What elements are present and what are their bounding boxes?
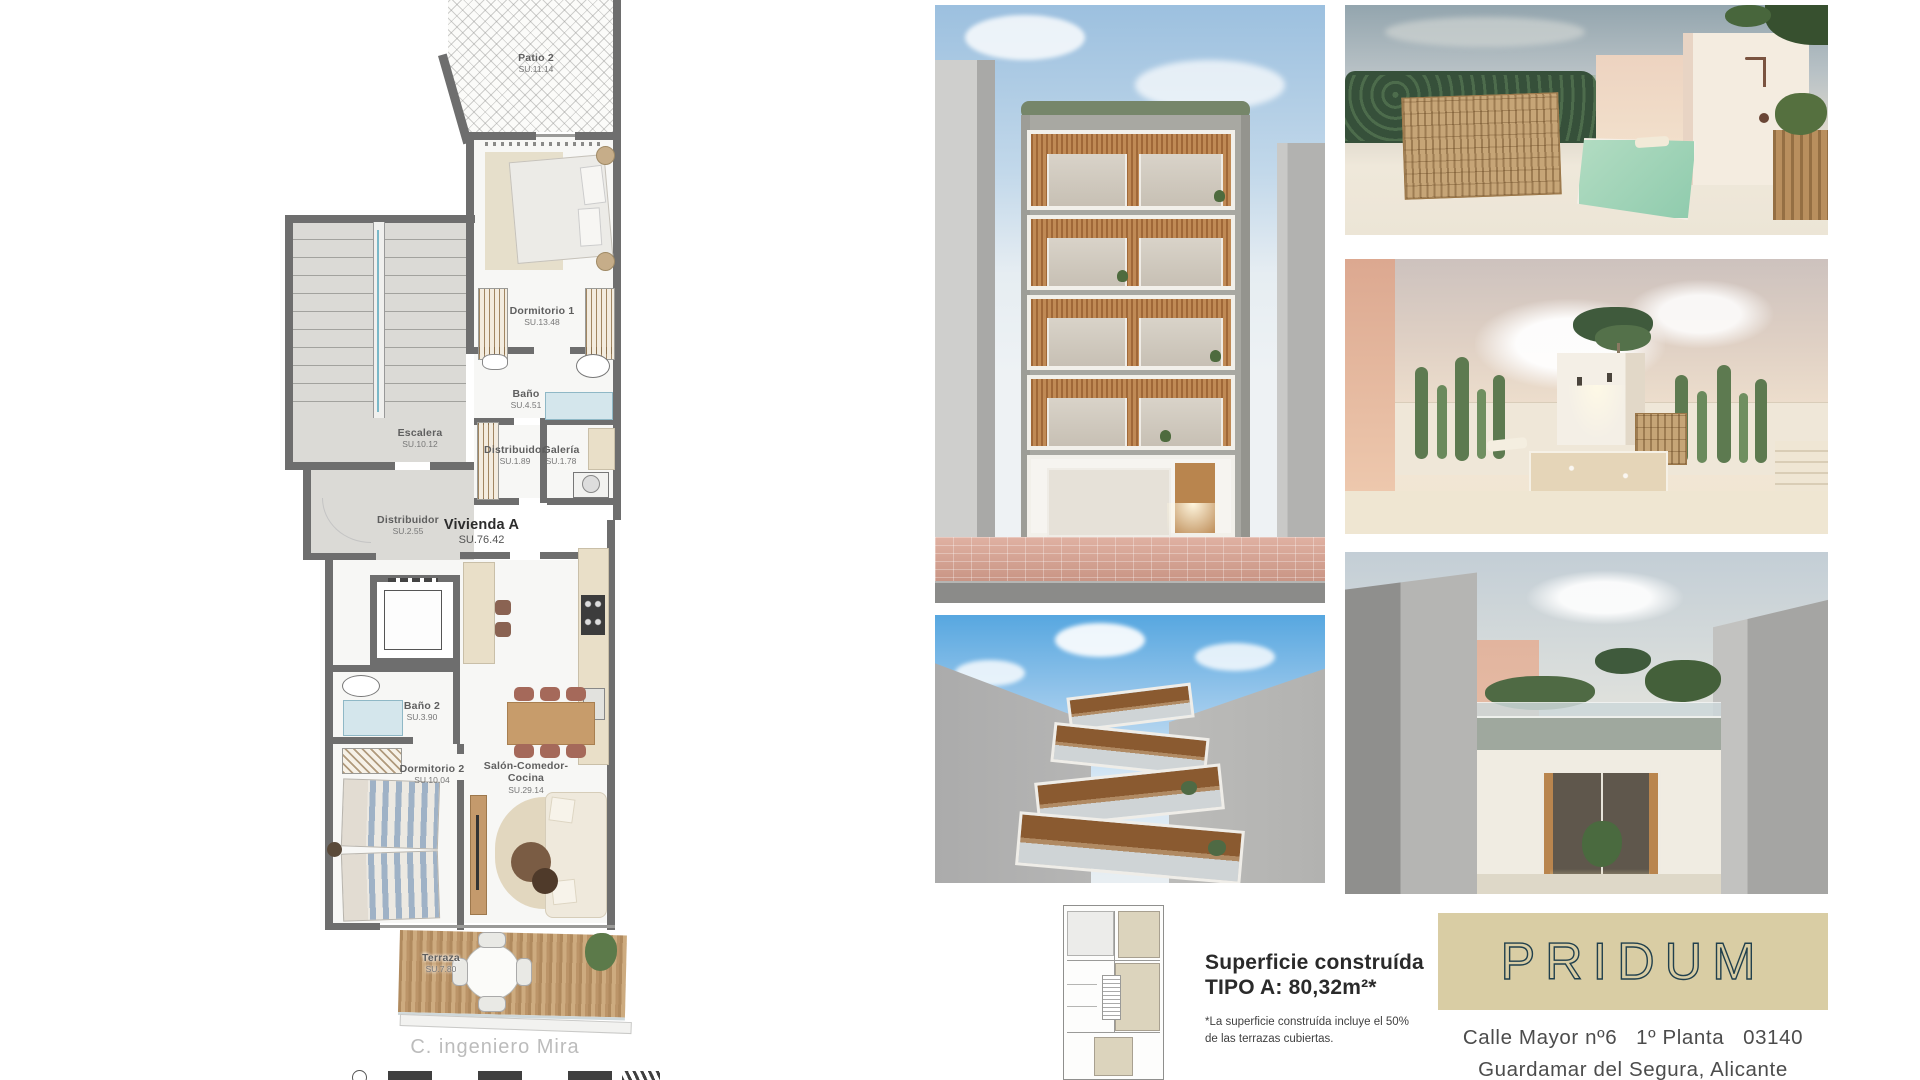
palm-fronds <box>1595 648 1651 674</box>
balcony-module <box>1027 130 1235 210</box>
chair <box>566 744 586 758</box>
terrace-chair <box>516 958 532 986</box>
room-label-escalera: Escalera SU.10.12 <box>380 427 460 449</box>
wardrobe <box>585 288 615 360</box>
tv <box>476 815 479 890</box>
summary-title-line2: TIPO A: 80,32m²* <box>1205 975 1440 1000</box>
cactus <box>1477 389 1486 459</box>
chair <box>540 744 560 758</box>
foreground-slab <box>1477 874 1721 894</box>
mini-plan-stairs <box>1102 975 1122 1020</box>
cloud <box>1055 623 1145 657</box>
wall <box>303 470 311 560</box>
balcony-glass <box>1139 154 1223 206</box>
cloud <box>1525 570 1685 625</box>
toilet <box>576 354 610 378</box>
wall <box>466 135 474 354</box>
balcony-plant <box>1210 350 1221 362</box>
stair-handrail <box>377 230 379 412</box>
dining-table <box>507 702 595 745</box>
sink <box>482 354 508 370</box>
legend-bar-symbol <box>568 1071 612 1080</box>
elevator-door <box>388 578 438 582</box>
legend-hatch-symbol <box>622 1071 660 1080</box>
cactus <box>1455 357 1469 461</box>
terrace-glass-door <box>380 925 615 928</box>
left-building <box>1345 552 1477 894</box>
storefront-light <box>1167 503 1219 533</box>
terrace-chair <box>478 996 506 1012</box>
render-facade-view <box>935 5 1325 603</box>
curtain <box>485 142 603 146</box>
cactus <box>1697 391 1707 463</box>
balcony-module <box>1027 295 1235 370</box>
wall <box>460 552 510 559</box>
chair <box>566 687 586 701</box>
patio-window <box>536 134 575 137</box>
balcony-glass <box>1047 398 1127 446</box>
cactus <box>1415 367 1428 459</box>
right-building <box>1713 552 1828 894</box>
bed-single <box>341 850 440 921</box>
balcony-glass <box>1047 238 1127 286</box>
coffee-table-small <box>532 868 558 894</box>
mini-plan-room-gray <box>1067 911 1115 956</box>
wall <box>333 665 460 672</box>
mini-plan-room-highlight <box>1118 911 1160 958</box>
neighbor-building-left <box>935 60 995 570</box>
cloud <box>1385 17 1585 47</box>
floor-plan: Patio 2 SU.11.14 Dormitorio 1 SU.13.48 B… <box>270 0 670 1080</box>
pink-wall <box>1345 259 1395 499</box>
summary-title-line1: Superficie construída <box>1205 950 1440 975</box>
neighbor-building-right <box>1277 143 1325 570</box>
palm-fronds <box>1725 5 1771 27</box>
brand-logo-box: PRIDUM <box>1438 913 1828 1010</box>
shower-pipe <box>1763 57 1766 87</box>
stair-stringer <box>373 222 385 418</box>
washing-machine-drum <box>582 475 600 493</box>
street-label: C. ingeniero Mira <box>330 1036 660 1059</box>
wall <box>613 0 621 140</box>
balcony-glass <box>1047 318 1127 366</box>
balcony-glass <box>1139 398 1223 446</box>
stair-flight-right <box>383 222 466 412</box>
pillow <box>578 207 603 246</box>
cactus <box>1755 379 1767 463</box>
stair-flight-left <box>293 222 375 412</box>
balcony-plant <box>1214 190 1225 202</box>
terrace-chair <box>478 932 506 948</box>
chair <box>540 687 560 701</box>
page: { "floor_plan": { "street_label": "C. in… <box>0 0 1920 1080</box>
wall <box>575 132 621 140</box>
rattan-screen <box>1401 92 1561 199</box>
cactus <box>1739 393 1748 463</box>
foreground-platform <box>1345 491 1828 534</box>
storefront-glass <box>1047 468 1171 537</box>
stool <box>495 600 511 615</box>
pink-wall <box>1596 55 1683 148</box>
stove <box>581 595 605 635</box>
cloud <box>1195 643 1275 671</box>
wall <box>325 560 333 930</box>
pridum-logo: PRIDUM <box>1483 923 1783 1001</box>
legend-bar-symbol <box>478 1071 522 1080</box>
sink <box>342 675 380 697</box>
concrete-roof-band <box>1477 716 1721 752</box>
mini-key-plan <box>1063 905 1164 1080</box>
mini-plan-room-line <box>1067 984 1097 985</box>
cactus <box>1717 365 1731 463</box>
legend-bar-symbol <box>388 1071 432 1080</box>
wall <box>285 215 293 470</box>
wall <box>466 132 536 140</box>
render-cacti-rooftop-view <box>1345 259 1828 534</box>
render-rooftop-volume-view <box>1345 552 1828 894</box>
wall <box>430 462 474 470</box>
render-aerial-balconies-view <box>935 615 1325 883</box>
balcony-plant <box>1117 270 1128 282</box>
light-glow <box>1567 385 1627 440</box>
interior-tree <box>1582 821 1622 867</box>
nightstand <box>596 252 615 271</box>
room-label-patio2: Patio 2 SU.11.14 <box>496 52 576 74</box>
render-pool-terrace-view <box>1345 5 1828 235</box>
legend-circle-symbol <box>352 1070 367 1080</box>
mini-plan-room-line <box>1067 1006 1097 1007</box>
wall <box>547 498 621 505</box>
room-label-galeria: Galería SU.1.78 <box>521 444 601 466</box>
brand-address-line2: Guardamar del Segura, Alicante <box>1438 1058 1828 1080</box>
mini-plan-room-highlight <box>1115 963 1160 1030</box>
shower-fixture <box>1745 57 1765 60</box>
bed-single <box>341 778 440 849</box>
mini-plan-room-highlight <box>1094 1037 1134 1075</box>
nightstand <box>596 146 615 165</box>
brand-address-line1: Calle Mayor nº6 1º Planta 03140 <box>1438 1026 1828 1050</box>
summary-footnote: *La superficie construída incluye el 50%… <box>1205 1014 1417 1047</box>
cloud <box>965 15 1085 60</box>
cactus <box>1437 385 1447 459</box>
balcony-module <box>1027 215 1235 290</box>
stool <box>495 622 511 637</box>
chair <box>514 687 534 701</box>
mini-plan-wall-line <box>1067 1032 1160 1033</box>
wall <box>333 737 413 744</box>
wall <box>285 462 395 470</box>
sidewalk <box>935 537 1325 581</box>
plunge-pool <box>1529 451 1668 493</box>
sofa-cushion <box>548 796 575 823</box>
room-label-dormitorio1: Dormitorio 1 SU.13.48 <box>502 305 582 327</box>
planter-plant <box>1775 93 1827 135</box>
wall <box>457 780 464 930</box>
room-label-terraza: Terraza SU.7.80 <box>401 952 481 974</box>
balcony-glass <box>1047 154 1127 206</box>
room-label-salon: Salón-Comedor-Cocina SU.29.14 <box>466 760 586 795</box>
area-summary: Superficie construída TIPO A: 80,32m²* *… <box>1205 950 1440 1048</box>
nightstand <box>327 842 342 857</box>
wall <box>457 744 464 754</box>
elevator-car <box>384 590 442 650</box>
room-label-dormitorio2: Dormitorio 2 SU.10.04 <box>392 763 472 785</box>
roof-shrubs <box>1645 660 1721 702</box>
wall-light <box>1607 373 1612 382</box>
balcony-glass <box>1139 238 1223 286</box>
balcony-plant <box>1181 781 1197 795</box>
room-label-bano2: Baño 2 SU.3.90 <box>382 700 462 722</box>
planter-rattan <box>1773 130 1828 220</box>
balcony-module <box>1027 375 1235 450</box>
kitchen-island <box>463 562 495 664</box>
wall <box>311 553 376 560</box>
unit-label-vivienda-a: Vivienda A SU.76.42 <box>434 517 529 547</box>
shower-knob <box>1759 113 1769 123</box>
pridum-logo-text: PRIDUM <box>1500 933 1765 991</box>
road <box>935 581 1325 603</box>
storefront <box>1027 455 1235 537</box>
pool-water <box>1577 138 1696 220</box>
chair <box>514 744 534 758</box>
pillow <box>580 165 606 205</box>
balcony-plant <box>1160 430 1171 442</box>
wall <box>325 923 380 930</box>
room-label-bano1: Baño SU.4.51 <box>486 388 566 410</box>
